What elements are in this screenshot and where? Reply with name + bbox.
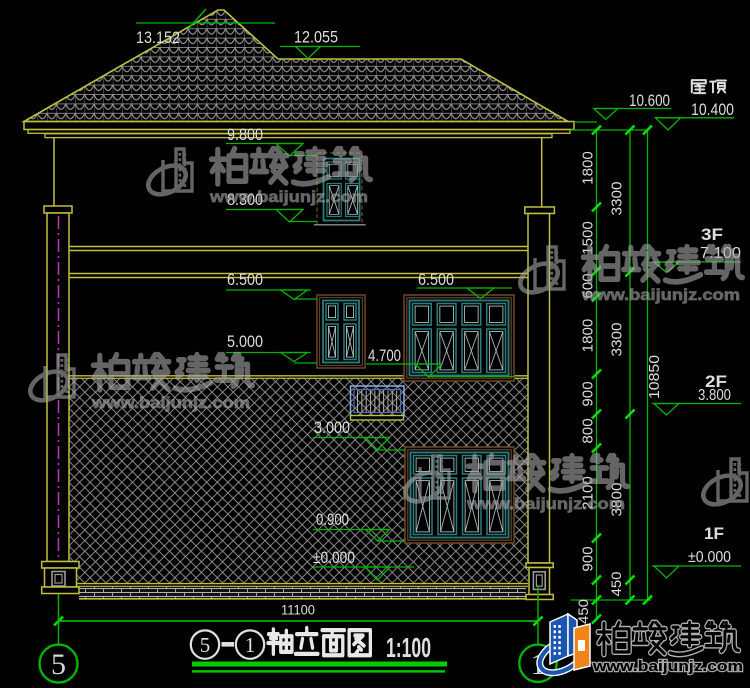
svg-text:12.055: 12.055: [294, 29, 338, 47]
svg-text:4.700: 4.700: [368, 347, 401, 365]
svg-text:±0.000: ±0.000: [688, 549, 731, 566]
svg-text:1800: 1800: [580, 319, 597, 353]
svg-text:3300: 3300: [609, 323, 626, 357]
svg-text:10.600: 10.600: [629, 92, 670, 110]
svg-text:www.baijunjz.com: www.baijunjz.com: [91, 395, 250, 412]
svg-text:3300: 3300: [609, 182, 626, 216]
svg-text:www.baijunjz.com: www.baijunjz.com: [209, 189, 368, 206]
svg-text:1800: 1800: [580, 151, 597, 185]
svg-text:6.500: 6.500: [418, 271, 454, 289]
svg-text:10.400: 10.400: [691, 101, 734, 119]
svg-text:1:100: 1:100: [386, 632, 431, 663]
svg-text:www.baijunjz.com: www.baijunjz.com: [581, 287, 740, 304]
svg-text:11100: 11100: [281, 602, 315, 618]
svg-text:6.500: 6.500: [227, 271, 263, 289]
svg-text:1F: 1F: [704, 524, 724, 543]
svg-text:3.000: 3.000: [314, 419, 350, 437]
svg-text:5.000: 5.000: [227, 333, 263, 351]
svg-text:900: 900: [580, 381, 597, 406]
svg-text:800: 800: [580, 418, 597, 443]
svg-text:5: 5: [200, 633, 211, 657]
svg-text:13.152: 13.152: [136, 29, 180, 47]
svg-text:1: 1: [245, 633, 256, 657]
svg-text:±0.000: ±0.000: [313, 549, 355, 567]
svg-text:10850: 10850: [646, 355, 663, 399]
svg-text:5: 5: [51, 648, 66, 681]
svg-text:3F: 3F: [701, 225, 723, 244]
svg-text:www.baijunjz.com: www.baijunjz.com: [466, 496, 625, 513]
svg-text:0.900: 0.900: [316, 511, 349, 529]
svg-text:3.800: 3.800: [698, 387, 731, 404]
svg-text:9.800: 9.800: [227, 126, 263, 144]
svg-text:900: 900: [580, 546, 597, 571]
svg-text:450: 450: [608, 571, 624, 596]
svg-text:www.baijunjz.com: www.baijunjz.com: [592, 658, 743, 675]
